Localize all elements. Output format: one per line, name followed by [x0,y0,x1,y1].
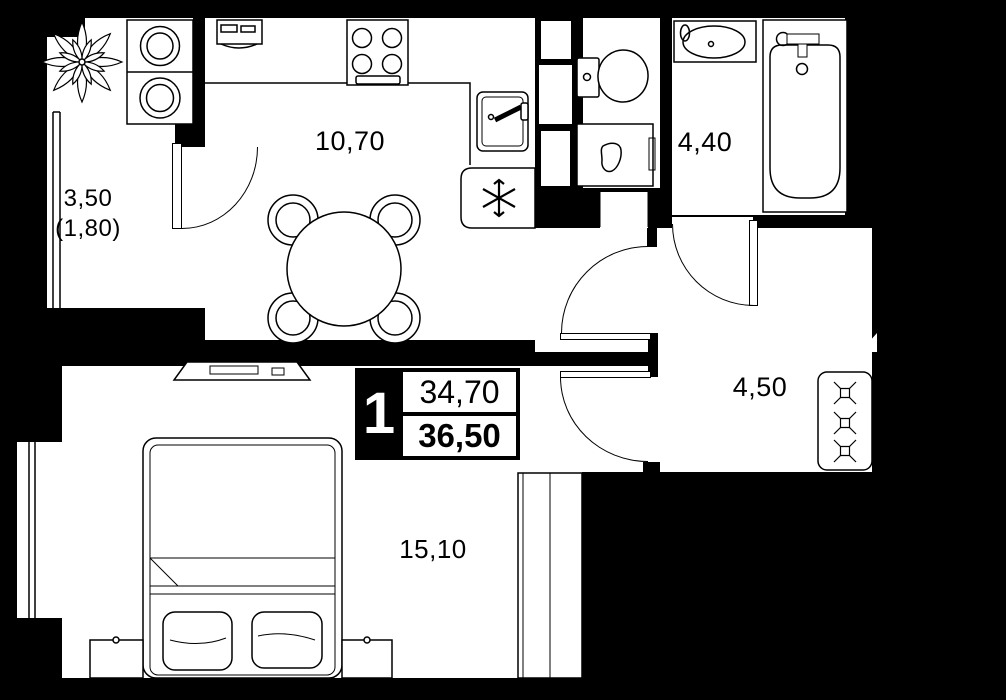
living-area-value: 34,70 [403,372,516,412]
kitchen-living-area-label: 10,70 [295,126,405,157]
wall-bedroom-west-lower [0,618,62,680]
wall-balcony-right [193,18,205,127]
total-area-value: 36,50 [403,416,516,456]
room-kitchen-living [203,18,535,340]
balcony-area-label: 3,50 (1,80) [33,184,143,244]
living-door-leaf [560,333,651,340]
wall-door-stub-upper [647,228,657,247]
floor-plan: 3,50 (1,80) 10,70 4,40 4,50 15,10 1 34,7… [0,0,1006,700]
rooms-count: 1 [355,368,403,460]
area-values: 34,70 36,50 [403,368,520,460]
wall-bedroom-west-upper [0,342,62,442]
wall-divider-east [535,352,648,366]
hallway-area-label: 4,50 [705,372,815,403]
shaft-niche [541,131,570,186]
balcony-door-leaf [172,143,182,229]
room-bathroom [672,18,845,215]
room-toilet [583,18,660,190]
wall-corner-block [0,0,85,37]
shaft-niche [539,65,572,124]
bedroom-window-bay [17,442,62,618]
balcony-area-secondary: (1,80) [33,214,143,244]
apartment-info-block: 1 34,70 36,50 [355,368,520,460]
wall-divider-mid [205,340,535,366]
shaft-niche [541,21,571,59]
balcony-area-value: 3,50 [33,184,143,214]
wall-door-stub-lower [643,462,660,476]
toilet-door-opening [600,192,648,228]
bedroom-area-label: 15,10 [378,534,488,565]
bathroom-area-label: 4,40 [650,127,760,158]
